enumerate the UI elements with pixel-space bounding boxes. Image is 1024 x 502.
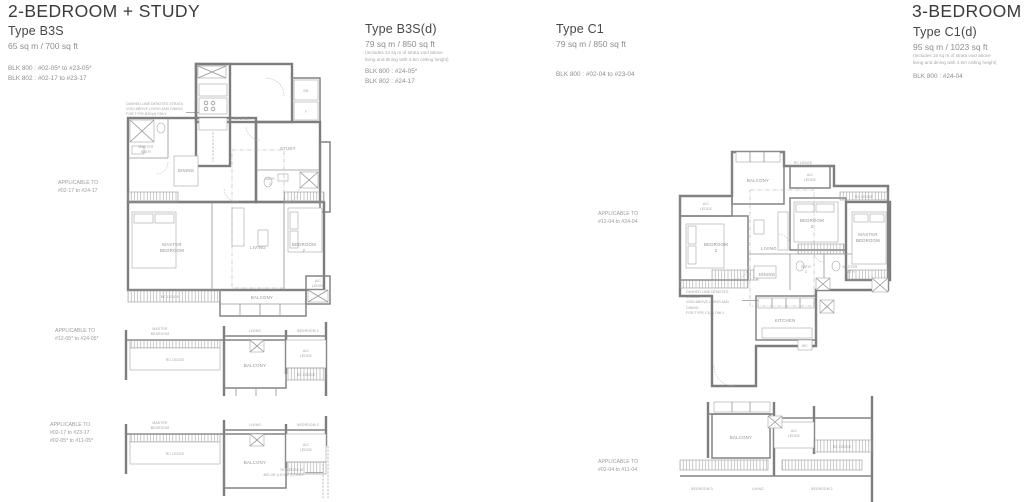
applicable-b3s-low: APPLICABLE TO#02-17 to #23-17#02-05* to … [50,421,93,445]
rc-ledge-label: RC LEDGE [855,195,874,199]
balcony-label: BALCONY [244,363,266,368]
living-label: LIVING [249,329,261,333]
wc-label: WC [802,344,808,348]
bedroom3-label: BEDROOM [704,242,728,247]
fixtures-and-furniture [130,340,326,396]
type-b3s-blocks: BLK 800 : #02-05* to #23-05*BLK 802 : #0… [8,64,92,85]
svg-text:LEDGE: LEDGE [312,284,325,288]
master-bath-label: MASTER [139,145,154,149]
dining-label: DINING [759,272,776,277]
applicable-c1-main: APPLICABLE TO#12-04 to #24-04 [598,210,638,226]
fixtures-and-furniture [130,434,326,488]
rc-ledge-label: RC LEDGE [166,452,185,456]
bath2-label: BATH [265,177,275,181]
svg-text:LEDGE: LEDGE [788,434,801,438]
svg-text:2: 2 [805,270,807,274]
ac-ledge-label: A/C [303,443,310,447]
fixtures-and-furniture [128,66,328,316]
bath2-label: BATH [801,265,811,269]
bedroom2-label: BEDROOM [292,242,316,247]
floorplan-type-b3s: KITCHEN DINING STUDY BATH 2 MASTER BATH … [120,62,332,318]
applicable-c1-low: APPLICABLE TO#02-04 to #11-04 [598,458,638,474]
living-label: LIVING [249,423,261,427]
rc-ledge-label: RC LEDGE [833,445,852,449]
ac-ledge-label: A/C [315,279,322,283]
ac-ledge-label: A/C [703,202,710,206]
type-b3s-area: 65 sq m / 700 sq ft [8,41,78,51]
svg-text:LEDGE: LEDGE [700,207,713,211]
dining-label: DINING [178,168,195,173]
ac-ledge-label: A/C [807,173,814,177]
ac-ledge-label: A/C [303,349,310,353]
fridge-label: F [305,110,307,114]
balcony-label: BALCONY [747,178,769,183]
type-c1-area: 79 sq m / 850 sq ft [556,39,626,49]
floorplan-b3s-balcony-upper: MASTER BEDROOM LIVING BEDROOM 2 RC LEDGE… [120,322,332,396]
svg-text:LEDGE: LEDGE [804,178,817,182]
type-b3sd-area: 79 sq m / 850 sq ft [365,39,435,49]
balcony-label: BALCONY [251,295,273,300]
type-c1d-name: Type C1(d) [913,25,977,39]
study-label: STUDY [280,146,296,151]
type-c1d-void-note: (Includes 16 sq m of strata void aboveli… [913,53,997,67]
rc-ledge-label: RC LEDGE [297,373,316,377]
type-b3sd-blocks: BLK 800 : #24-05*BLK 802 : #24-17 [365,67,417,88]
svg-text:2: 2 [303,248,306,253]
svg-text:BEDROOM: BEDROOM [160,248,184,253]
type-b3s-name: Type B3S [8,24,64,38]
living-label: LIVING [761,246,777,251]
type-b3sd-name: Type B3S(d) [365,22,437,36]
section-title-3br: 3-BEDROOM [912,1,1022,22]
floorplan-page: 2-BEDROOM + STUDY 3-BEDROOM Type B3S 65 … [0,0,1024,502]
master-bedroom-label: MASTER [153,327,168,331]
living-label: LIVING [752,487,764,491]
rc-ledge-label: RC LEDGE [166,358,185,362]
bedroom2-label: BEDROOM 2 [297,329,319,333]
balcony-label: BALCONY [730,435,752,440]
svg-text:BEDROOM: BEDROOM [151,332,169,336]
rc-ledge-label: RC LEDGE [161,295,180,299]
svg-text:BEDROOM: BEDROOM [856,238,880,243]
svg-text:2: 2 [715,248,718,253]
applicable-b3s-main: APPLICABLE TO#02-17 to #24-17 [58,179,98,195]
master-bedroom-label: MASTER [153,421,168,425]
svg-text:BEDROOM: BEDROOM [151,426,169,430]
kitchen-label: KITCHEN [775,318,796,323]
master-bedroom-label: MASTER [858,232,877,237]
bedroom3-label: BEDROOM 3 [691,487,713,491]
ac-ledge-label: A/C [791,429,798,433]
bedroom2-label: BEDROOM 2 [811,487,833,491]
bedroom2-label: BEDROOM 2 [297,423,319,427]
walls [680,152,890,386]
type-c1d-blocks: BLK 800 : #24-04 [913,72,963,82]
section-title-2br-study: 2-BEDROOM + STUDY [8,1,200,22]
applicable-b3s-mid: APPLICABLE TO#12-05* to #24-05* [55,327,99,343]
type-c1-name: Type C1 [556,22,604,36]
floorplan-type-c1: BALCONY RC LEDGE A/C LEDGE RC LEDGE A/C … [672,150,892,392]
svg-text:LEDGE: LEDGE [300,448,313,452]
type-b3sd-void-note: (Includes 14 sq m of strata void aboveli… [365,50,449,64]
floorplan-b3s-balcony-lower: MASTER BEDROOM LIVING BEDROOM 2 RC LEDGE… [120,416,332,502]
svg-text:2: 2 [269,182,271,186]
rc-ledge-label: RC LEDGE [794,161,813,165]
master-bath-label: MASTER [843,265,858,269]
balcony-label: BALCONY [244,460,266,465]
master-bedroom-label: MASTER [162,242,181,247]
kitchen-label: KITCHEN [234,117,250,121]
svg-text:2: 2 [811,224,814,229]
db-label: DB [304,89,310,93]
svg-text:BATH: BATH [141,150,151,154]
bedroom2-label: BEDROOM [800,218,824,223]
floorplan-c1-balcony-lower: BALCONY A/C LEDGE RC LEDGE BEDROOM 3 LIV… [672,396,892,502]
living-label: LIVING [250,245,266,250]
type-c1d-area: 95 sq m / 1023 sq ft [913,42,988,52]
type-c1-blocks: BLK 800 : #02-04 to #23-04 [556,70,635,80]
svg-text:BATH: BATH [845,270,855,274]
svg-text:LEDGE: LEDGE [300,354,313,358]
